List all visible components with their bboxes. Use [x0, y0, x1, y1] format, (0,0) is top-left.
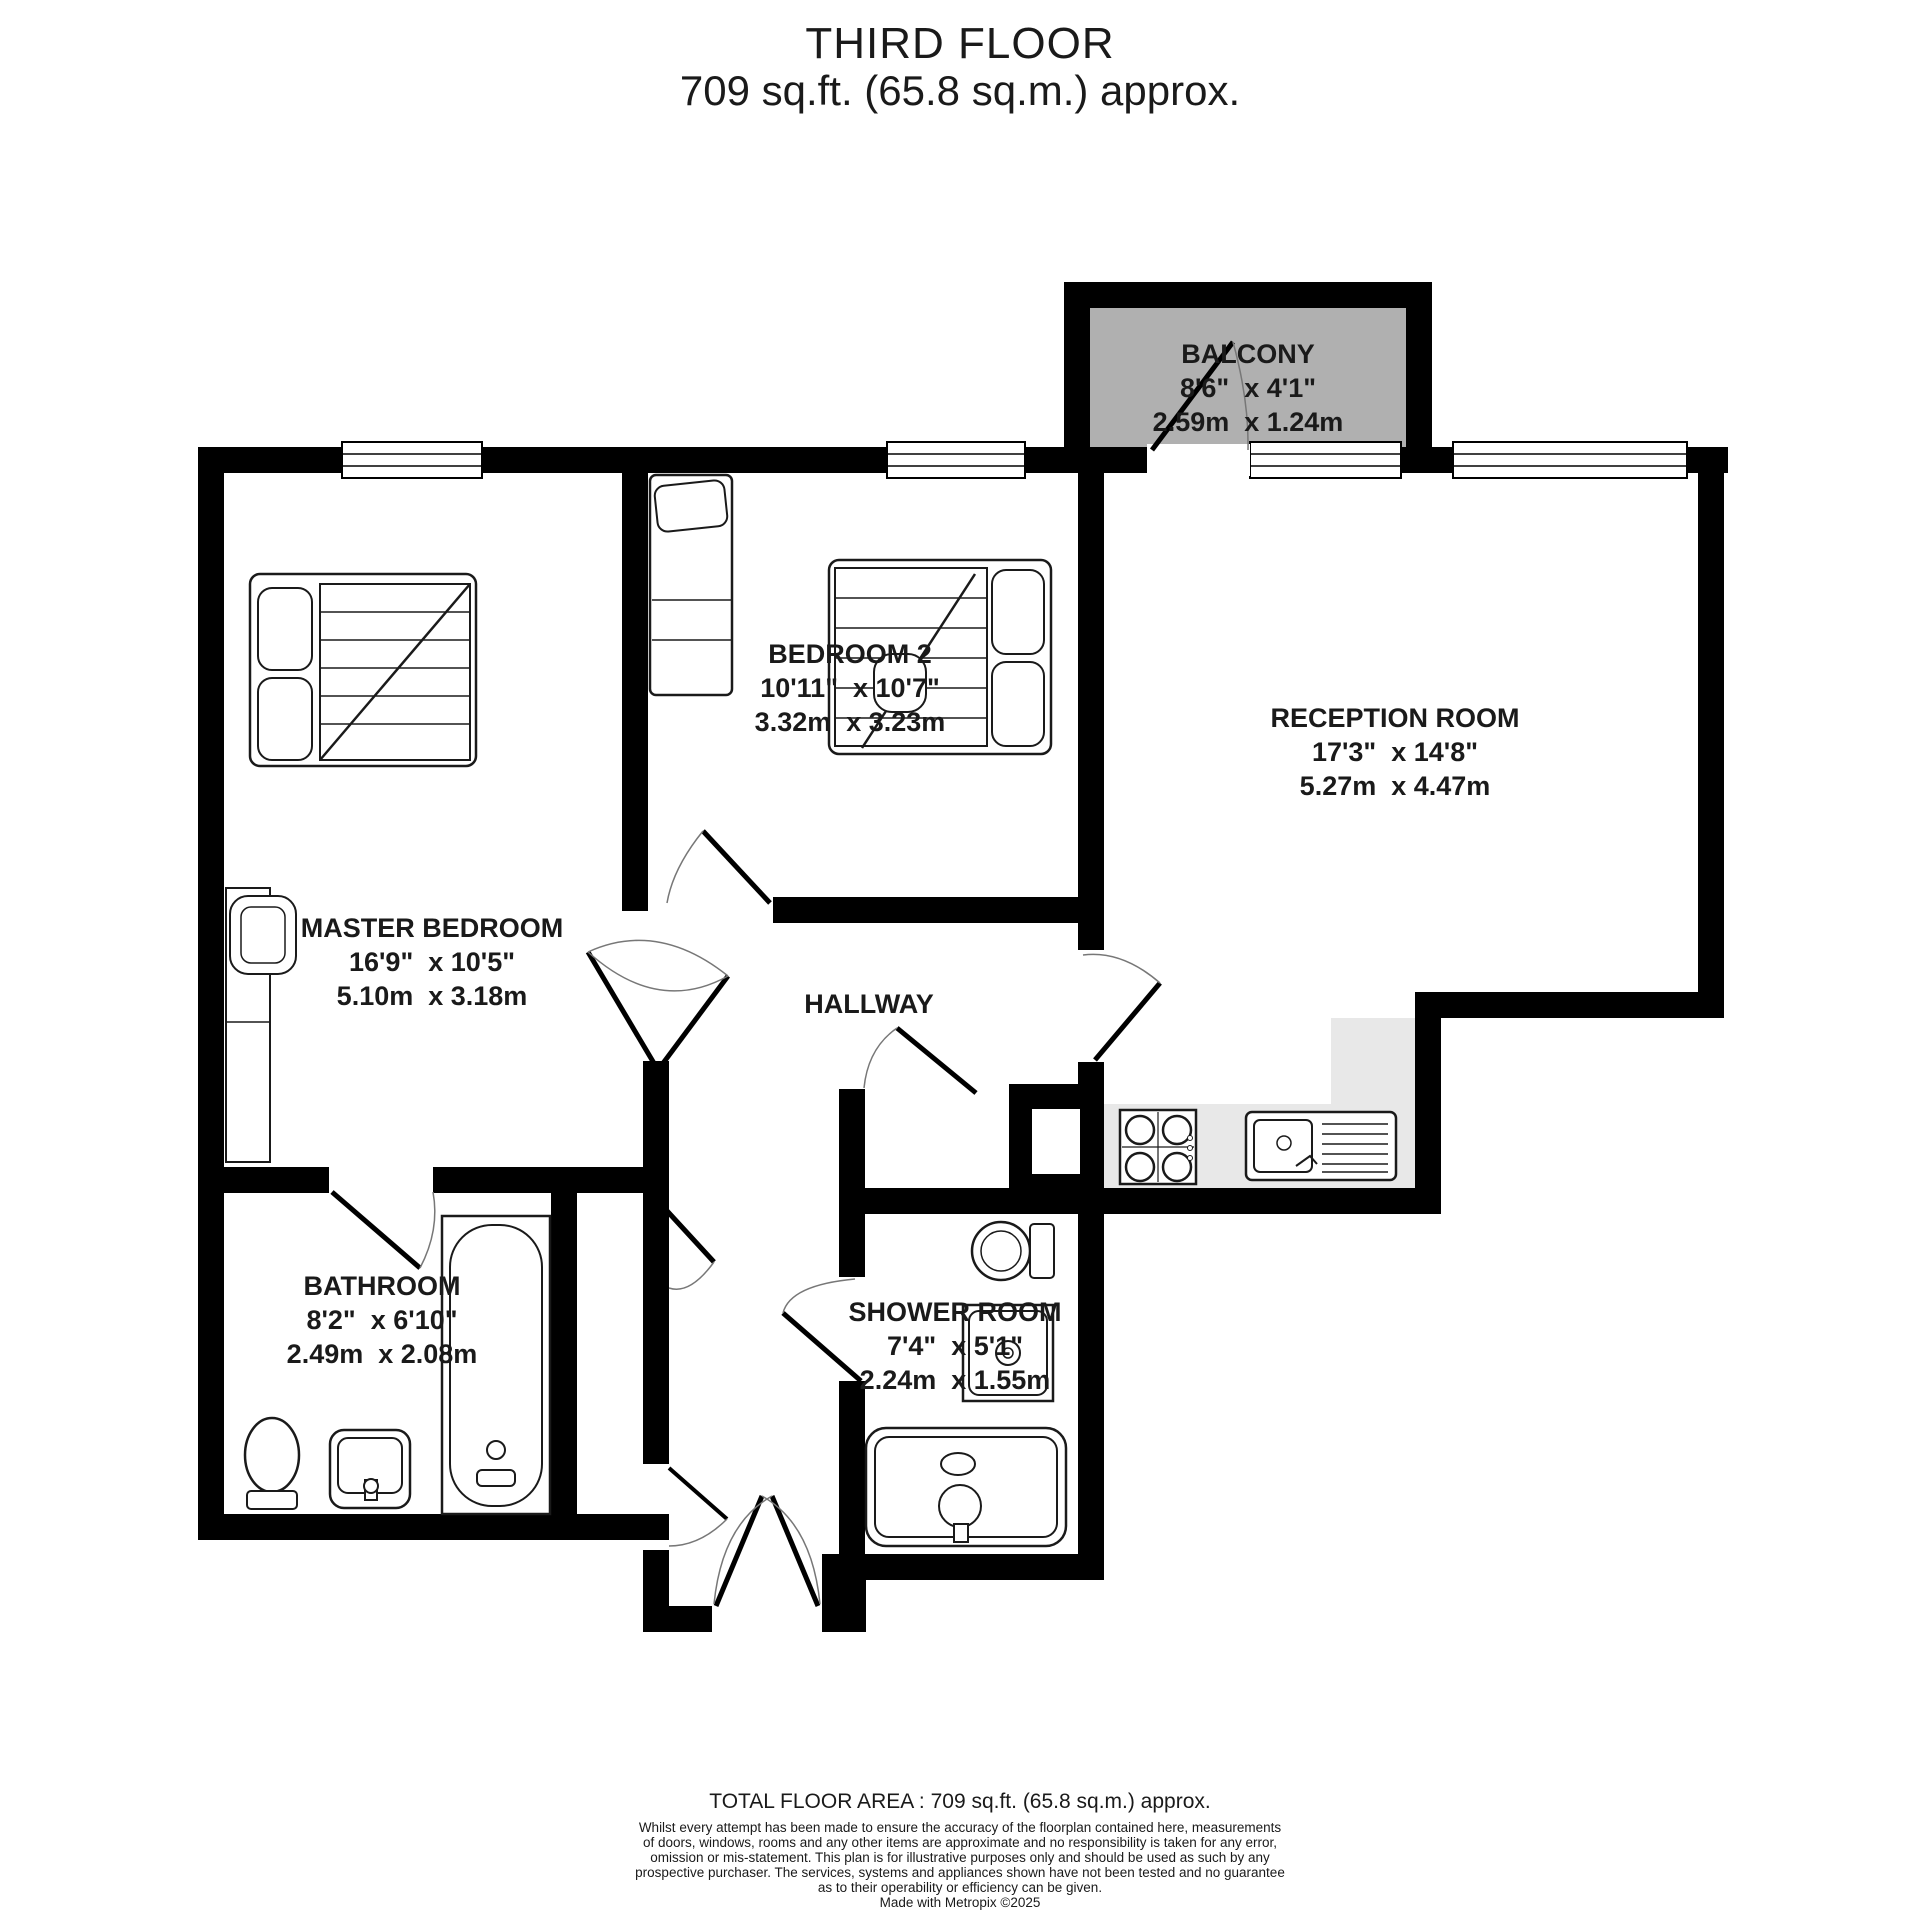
kitchen-sink — [1246, 1112, 1396, 1180]
disclaimer: Whilst every attempt has been made to en… — [0, 1820, 1920, 1910]
window-reception — [1453, 442, 1687, 478]
shower-toilet — [972, 1222, 1054, 1280]
window-master — [342, 442, 482, 478]
bathroom-toilet — [245, 1418, 299, 1509]
shower-sink — [866, 1428, 1066, 1546]
room-label-balcony: BALCONY 8'6" x 4'1" 2.59m x 1.24m — [1153, 337, 1344, 439]
room-label-reception: RECEPTION ROOM 17'3" x 14'8" 5.27m x 4.4… — [1270, 701, 1519, 803]
master-wardrobe — [226, 888, 296, 1162]
metropix-credit: Made with Metropix ©2025 — [0, 1895, 1920, 1910]
floorplan-page: THIRD FLOOR 709 sq.ft. (65.8 sq.m.) appr… — [0, 0, 1920, 1910]
kitchen-door — [864, 1028, 976, 1093]
floor-area: 709 sq.ft. (65.8 sq.m.) approx. — [0, 68, 1920, 114]
master-bedroom-doors — [588, 940, 728, 1070]
bathroom-door — [332, 1192, 435, 1268]
floor-plan — [0, 0, 1920, 1910]
bedroom2-single-bed — [650, 475, 732, 695]
floor-name: THIRD FLOOR — [0, 20, 1920, 68]
entry-doors — [714, 1496, 820, 1606]
cupboard-door — [669, 1468, 727, 1546]
window-balcony — [1250, 442, 1401, 478]
room-label-hallway: HALLWAY — [804, 987, 934, 1021]
total-floor-area: TOTAL FLOOR AREA : 709 sq.ft. (65.8 sq.m… — [0, 1790, 1920, 1814]
master-bed — [250, 574, 476, 766]
bathroom-sink — [330, 1430, 410, 1508]
room-label-bedroom2: BEDROOM 2 10'11" x 10'7" 3.32m x 3.23m — [755, 637, 946, 739]
page-title: THIRD FLOOR 709 sq.ft. (65.8 sq.m.) appr… — [0, 20, 1920, 114]
room-label-bathroom: BATHROOM 8'2" x 6'10" 2.49m x 2.08m — [287, 1269, 478, 1371]
bedroom2-door — [667, 831, 770, 903]
window-bedroom2 — [887, 442, 1025, 478]
room-label-shower: SHOWER ROOM 7'4" x 5'1" 2.24m x 1.55m — [849, 1295, 1062, 1397]
kitchen-hob — [1120, 1110, 1196, 1184]
room-label-master: MASTER BEDROOM 16'9" x 10'5" 5.10m x 3.1… — [301, 911, 564, 1013]
